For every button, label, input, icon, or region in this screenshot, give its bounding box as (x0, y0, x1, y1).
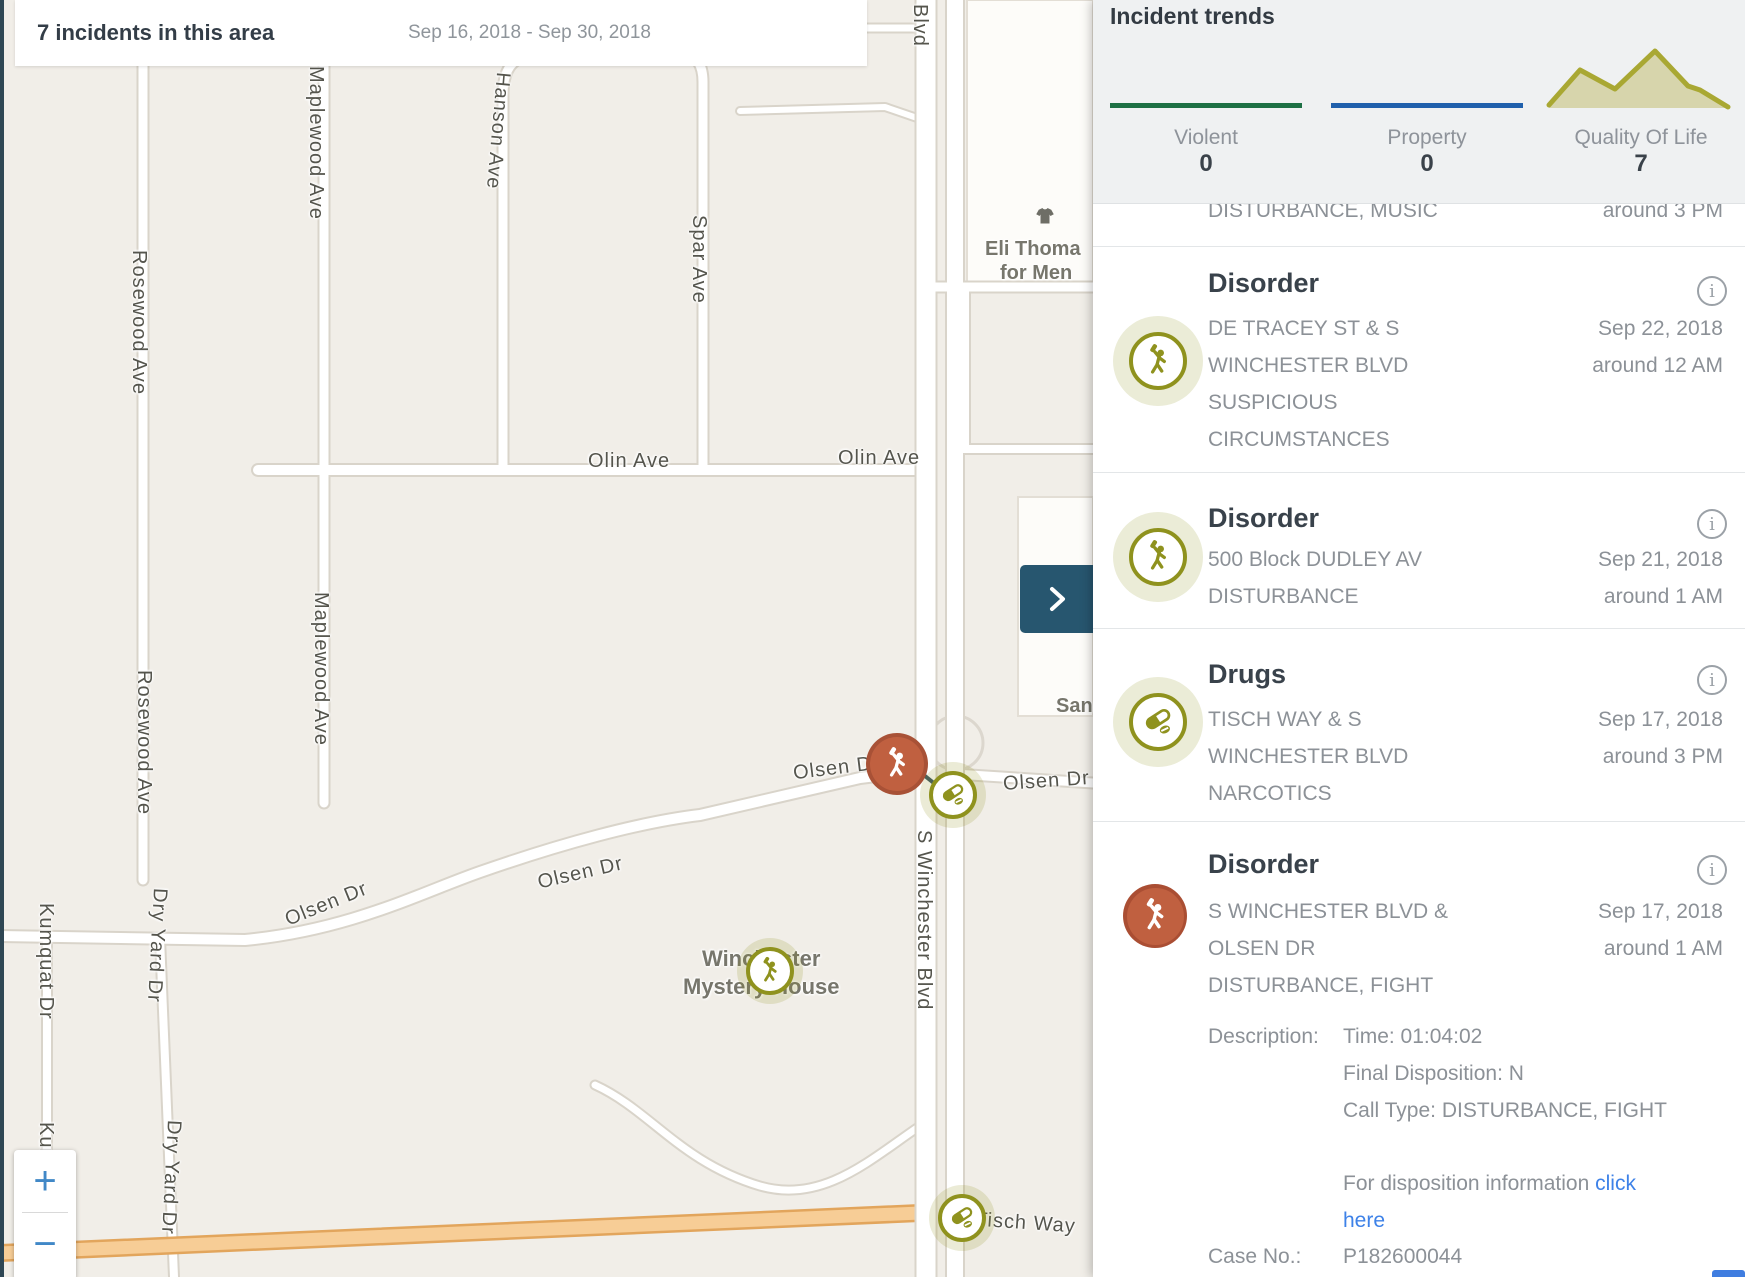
trend-violent[interactable]: Violent 0 (1110, 0, 1302, 200)
incident-address-line: DISTURBANCE, FIGHT (1208, 967, 1538, 1004)
poi-label-eli-thomas-1: Eli Thoma (985, 238, 1081, 261)
left-edge-strip (0, 0, 4, 1277)
incident-trends-section: Incident trends Violent 0 Property 0 Qua… (1093, 0, 1745, 204)
incident-time: around 1 AM (1483, 930, 1723, 967)
info-icon[interactable]: i (1697, 855, 1727, 885)
description-label: Description: (1208, 1025, 1319, 1049)
case-number-label: Case No.: (1208, 1245, 1301, 1269)
zoom-in-button[interactable]: + (14, 1150, 76, 1212)
street-label-maplewood-s: Maplewood Ave (309, 592, 332, 746)
chat-button-partial[interactable] (1712, 1270, 1745, 1277)
click-here-link[interactable]: click (1595, 1172, 1636, 1195)
street-label-spar: Spar Ave (687, 215, 710, 304)
incident-count-title: 7 incidents in this area (37, 20, 274, 46)
list-divider (1093, 472, 1745, 473)
street-label-rosewood-s: Rosewood Ave (132, 670, 155, 815)
disposition-info-text: For disposition information click (1343, 1172, 1636, 1196)
incident-date: Sep 17, 2018 (1483, 893, 1723, 930)
person-icon (755, 956, 785, 986)
person-icon (879, 746, 915, 782)
description-call-type: Call Type: DISTURBANCE, FIGHT (1343, 1099, 1667, 1123)
incident-address-line: SUSPICIOUS (1208, 384, 1538, 421)
list-divider (1093, 246, 1745, 247)
street-label-kumquat: Kumquat Dr (34, 903, 57, 1020)
zoom-out-button[interactable]: − (14, 1213, 76, 1275)
street-label-blvd: Blvd (908, 4, 931, 47)
list-divider (1093, 821, 1745, 822)
trend-value: 0 (1331, 150, 1523, 178)
description-final-disposition: Final Disposition: N (1343, 1062, 1524, 1086)
poi-label-san: San (1056, 695, 1093, 718)
incident-date: Sep 17, 2018 (1483, 701, 1723, 738)
crime-map-app: Blvd Maplewood Ave Maplewood Ave Rosewoo… (0, 0, 1745, 1277)
street-label-winchester: S Winchester Blvd (912, 830, 935, 1010)
incident-date: Sep 21, 2018 (1483, 541, 1723, 578)
trend-property[interactable]: Property 0 (1331, 0, 1523, 200)
incident-time: around 1 AM (1483, 578, 1723, 615)
street-label-maplewood-n: Maplewood Ave (304, 66, 327, 220)
info-icon[interactable]: i (1697, 665, 1727, 695)
pill-icon (938, 780, 968, 810)
map-zoom-control: + − (14, 1150, 76, 1277)
list-divider (1093, 628, 1745, 629)
incident-address-line: NARCOTICS (1208, 775, 1538, 812)
trend-label: Violent (1110, 126, 1302, 150)
trend-quality-of-life[interactable]: Quality Of Life 7 (1545, 0, 1737, 200)
poi-label-eli-thomas-2: for Men (1000, 262, 1072, 285)
map-header: 7 incidents in this area Sep 16, 2018 - … (15, 0, 867, 66)
street-label-olin-w: Olin Ave (588, 450, 670, 473)
chevron-right-icon (1043, 584, 1071, 614)
incident-panel: DISTURBANCE, MUSIC around 3 PM Incident … (1093, 0, 1745, 1277)
map-roads-layer (0, 0, 1093, 1277)
info-icon[interactable]: i (1697, 509, 1727, 539)
incident-address-line: CIRCUMSTANCES (1208, 421, 1538, 458)
quality-of-life-sparkline (1545, 48, 1737, 110)
incident-type: Disorder (1208, 268, 1319, 299)
tshirt-icon (1028, 206, 1062, 236)
trend-value: 7 (1545, 150, 1737, 178)
incident-type: Disorder (1208, 849, 1319, 880)
violent-trend-line (1110, 103, 1302, 108)
panel-expand-button[interactable] (1020, 565, 1093, 633)
property-trend-line (1331, 103, 1523, 108)
incident-type: Drugs (1208, 659, 1286, 690)
case-number-value: P182600044 (1343, 1245, 1462, 1269)
trend-label: Quality Of Life (1545, 126, 1737, 150)
trend-value: 0 (1110, 150, 1302, 178)
street-label-olin-e: Olin Ave (838, 447, 920, 470)
pill-icon (947, 1203, 977, 1233)
map-canvas[interactable]: Blvd Maplewood Ave Maplewood Ave Rosewoo… (0, 0, 1093, 1277)
incident-time: around 12 AM (1483, 347, 1723, 384)
incident-date: Sep 22, 2018 (1483, 310, 1723, 347)
info-icon[interactable]: i (1697, 276, 1727, 306)
trend-label: Property (1331, 126, 1523, 150)
incident-time: around 3 PM (1483, 738, 1723, 775)
disposition-text: For disposition information (1343, 1172, 1595, 1195)
date-range: Sep 16, 2018 - Sep 30, 2018 (408, 22, 651, 44)
incident-type: Disorder (1208, 503, 1319, 534)
description-time: Time: 01:04:02 (1343, 1025, 1482, 1049)
click-here-link[interactable]: here (1343, 1209, 1385, 1232)
street-label-rosewood-n: Rosewood Ave (127, 250, 150, 395)
